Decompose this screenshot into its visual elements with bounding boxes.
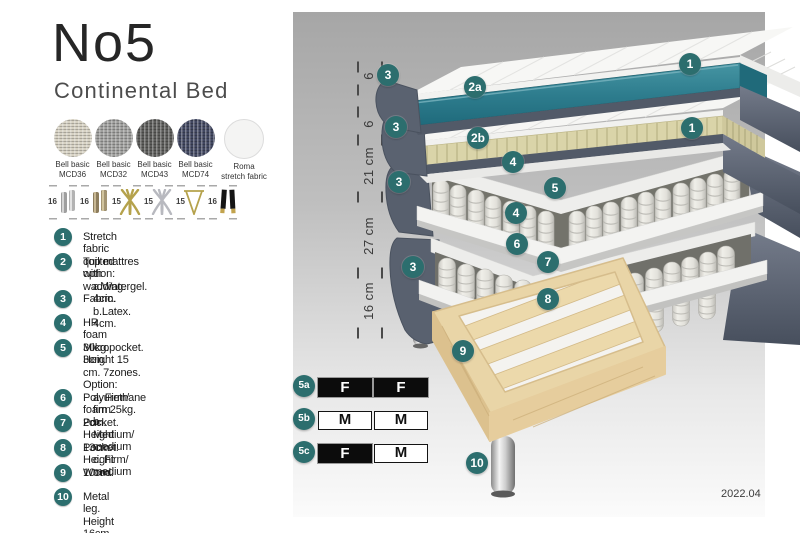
diagram-badge-1b: 1 xyxy=(681,117,703,139)
fabric-swatch-label: Bell basicMCD74 xyxy=(178,160,212,179)
item-number-badge: 5 xyxy=(54,339,72,357)
fabric-swatch-label: Bell basicMCD36 xyxy=(55,160,89,179)
leg-option: 15 xyxy=(112,184,144,220)
list-item: 10 Metal leg. Height 16cm. xyxy=(54,488,114,533)
dimension-label: 16 cm xyxy=(361,282,376,320)
firmness-row-badge: 5b xyxy=(293,408,315,430)
diagram-badge-2a: 2a xyxy=(464,76,486,98)
item-number-badge: 8 xyxy=(54,439,72,457)
firmness-cell: M xyxy=(318,411,372,430)
diagram-badge-3: 3 xyxy=(377,64,399,86)
item-number-badge: 3 xyxy=(54,290,72,308)
list-item: 3 Fabric. xyxy=(54,290,116,308)
fabric-swatch-label: Romastretch fabric xyxy=(221,162,267,181)
leg-options: 16 16 15 15 xyxy=(48,184,240,220)
firmness-row: M M xyxy=(318,411,428,430)
fabric-swatch-icon xyxy=(54,119,92,157)
firmness-cell: F xyxy=(318,378,372,397)
diagram-badge-3c: 3 xyxy=(388,171,410,193)
item-number-badge: 2 xyxy=(54,253,72,271)
fabric-swatch: Bell basicMCD43 xyxy=(134,119,175,181)
diagram-badge-3d: 3 xyxy=(402,256,424,278)
diagram-badge-4b: 4 xyxy=(505,202,527,224)
firmness-cell: F xyxy=(318,444,372,463)
diagram-badge-3b: 3 xyxy=(385,116,407,138)
front-metal-leg xyxy=(491,436,515,494)
fabric-swatch-icon xyxy=(224,119,264,159)
leg-option: 16 xyxy=(80,184,112,220)
cross-legs-gold-icon xyxy=(118,189,142,215)
fabric-swatch-icon xyxy=(95,119,133,157)
diagram-badge-8: 8 xyxy=(537,288,559,310)
page-title: No5 xyxy=(52,16,157,70)
diagram-badge-4: 4 xyxy=(502,151,524,173)
item-number-badge: 9 xyxy=(54,464,72,482)
hairpin-leg-gold-icon xyxy=(182,189,206,215)
dimension-label: 6 xyxy=(361,72,376,80)
revision-date: 2022.04 xyxy=(721,488,761,500)
item-number-badge: 1 xyxy=(54,228,72,246)
firmness-row-badge: 5a xyxy=(293,375,315,397)
diagram-badge-10: 10 xyxy=(466,452,488,474)
firmness-cell: M xyxy=(374,444,428,463)
item-number-badge: 10 xyxy=(54,488,72,506)
product-sheet: No5 Continental Bed Bell basicMCD36 Bell… xyxy=(0,0,800,533)
fabric-swatch-icon xyxy=(136,119,174,157)
dimension-label: 27 cm xyxy=(361,217,376,255)
item-text: Fabric. xyxy=(83,290,116,305)
firmness-row: F M xyxy=(318,444,428,463)
leg-option: 16 xyxy=(208,184,240,220)
cross-legs-silver-icon xyxy=(150,189,174,215)
firmness-row: F F xyxy=(318,378,428,397)
dimension-label: 21 cm xyxy=(361,147,376,185)
leg-height: 16 xyxy=(48,197,57,206)
item-number-badge: 7 xyxy=(54,414,72,432)
diagram-badge-9: 9 xyxy=(452,340,474,362)
tapered-legs-black-gold-icon xyxy=(218,189,238,215)
fabric-swatch: Bell basicMCD32 xyxy=(93,119,134,181)
fabric-swatch-label: Bell basicMCD32 xyxy=(96,160,130,179)
dimension-label: 6 xyxy=(361,120,376,128)
cylinder-legs-bronze-icon xyxy=(92,189,110,215)
diagram-badge-1: 1 xyxy=(679,53,701,75)
leg-height: 16 xyxy=(80,197,89,206)
diagram-panel: 6 6 21 cm 27 cm 16 cm 1 1 2a 2b 3 3 3 3 … xyxy=(293,0,800,533)
fabric-swatch-label: Bell basicMCD43 xyxy=(137,160,171,179)
fabric-swatch: Bell basicMCD74 xyxy=(175,119,216,181)
diagram-badge-5: 5 xyxy=(544,177,566,199)
leg-height: 16 xyxy=(208,197,217,206)
item-number-badge: 4 xyxy=(54,314,72,332)
fabric-swatch: Romastretch fabric xyxy=(216,119,272,181)
item-text: Metal leg. Height 16cm. xyxy=(83,488,114,533)
page-subtitle: Continental Bed xyxy=(54,78,229,104)
firmness-row-badge: 5c xyxy=(293,441,315,463)
firmness-cell: F xyxy=(374,378,428,397)
item-number-badge: 6 xyxy=(54,389,72,407)
cylinder-legs-silver-icon xyxy=(60,189,78,215)
diagram-badge-7: 7 xyxy=(537,251,559,273)
leg-option: 16 xyxy=(48,184,80,220)
fabric-swatch: Bell basicMCD36 xyxy=(52,119,93,181)
diagram-badge-2b: 2b xyxy=(467,127,489,149)
fabric-swatch-icon xyxy=(177,119,215,157)
firmness-cell: M xyxy=(374,411,428,430)
item-text: Wood. xyxy=(83,464,114,479)
leg-option: 15 xyxy=(144,184,176,220)
fabric-swatches: Bell basicMCD36 Bell basicMCD32 Bell bas… xyxy=(52,119,272,181)
list-item: 9 Wood. xyxy=(54,464,114,482)
diagram-badge-6: 6 xyxy=(506,233,528,255)
leg-option: 15 xyxy=(176,184,208,220)
